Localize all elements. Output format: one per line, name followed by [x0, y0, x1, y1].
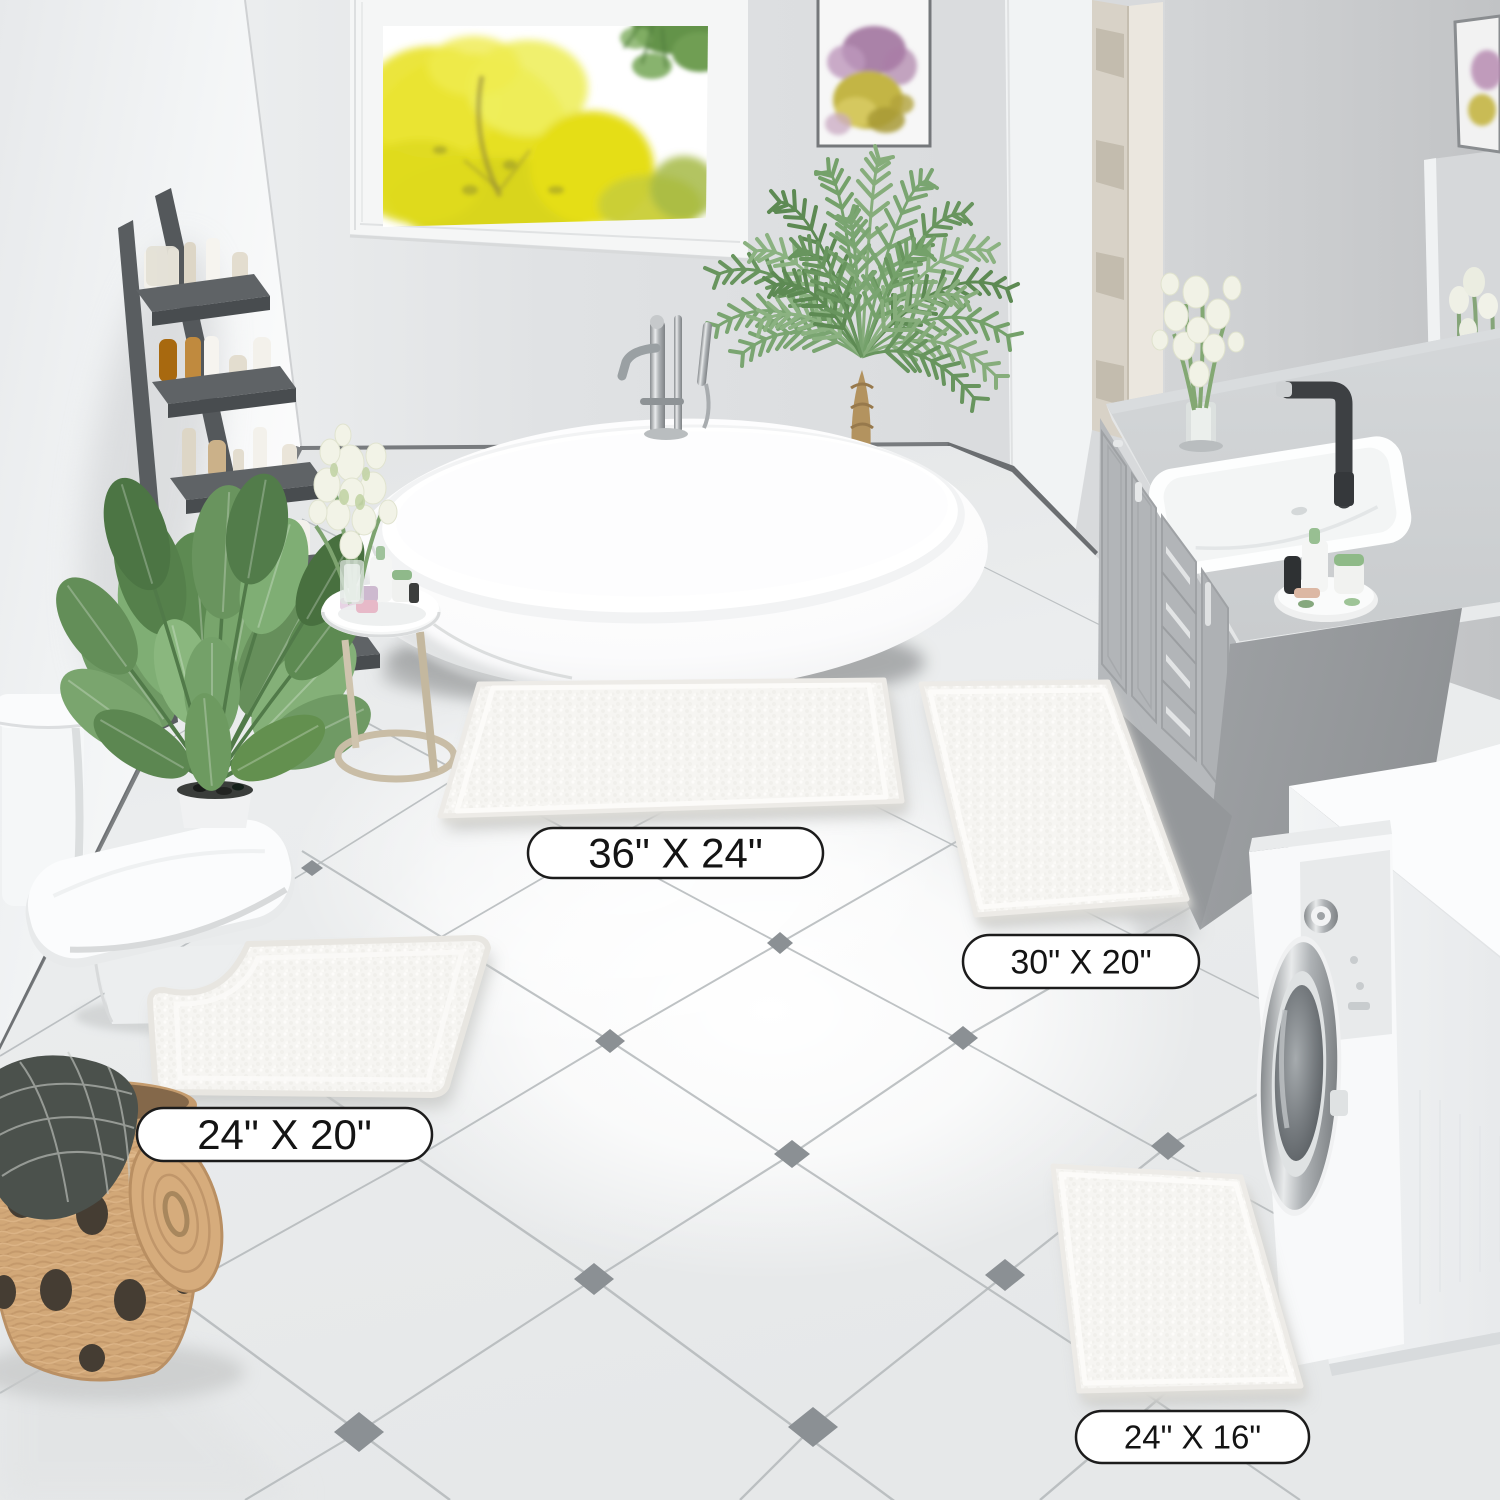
svg-text:30" X 20": 30" X 20"	[1010, 943, 1151, 981]
svg-text:36" X 24": 36" X 24"	[588, 830, 763, 877]
svg-text:24" X 20": 24" X 20"	[197, 1111, 372, 1158]
svg-text:24" X 16": 24" X 16"	[1124, 1419, 1261, 1456]
